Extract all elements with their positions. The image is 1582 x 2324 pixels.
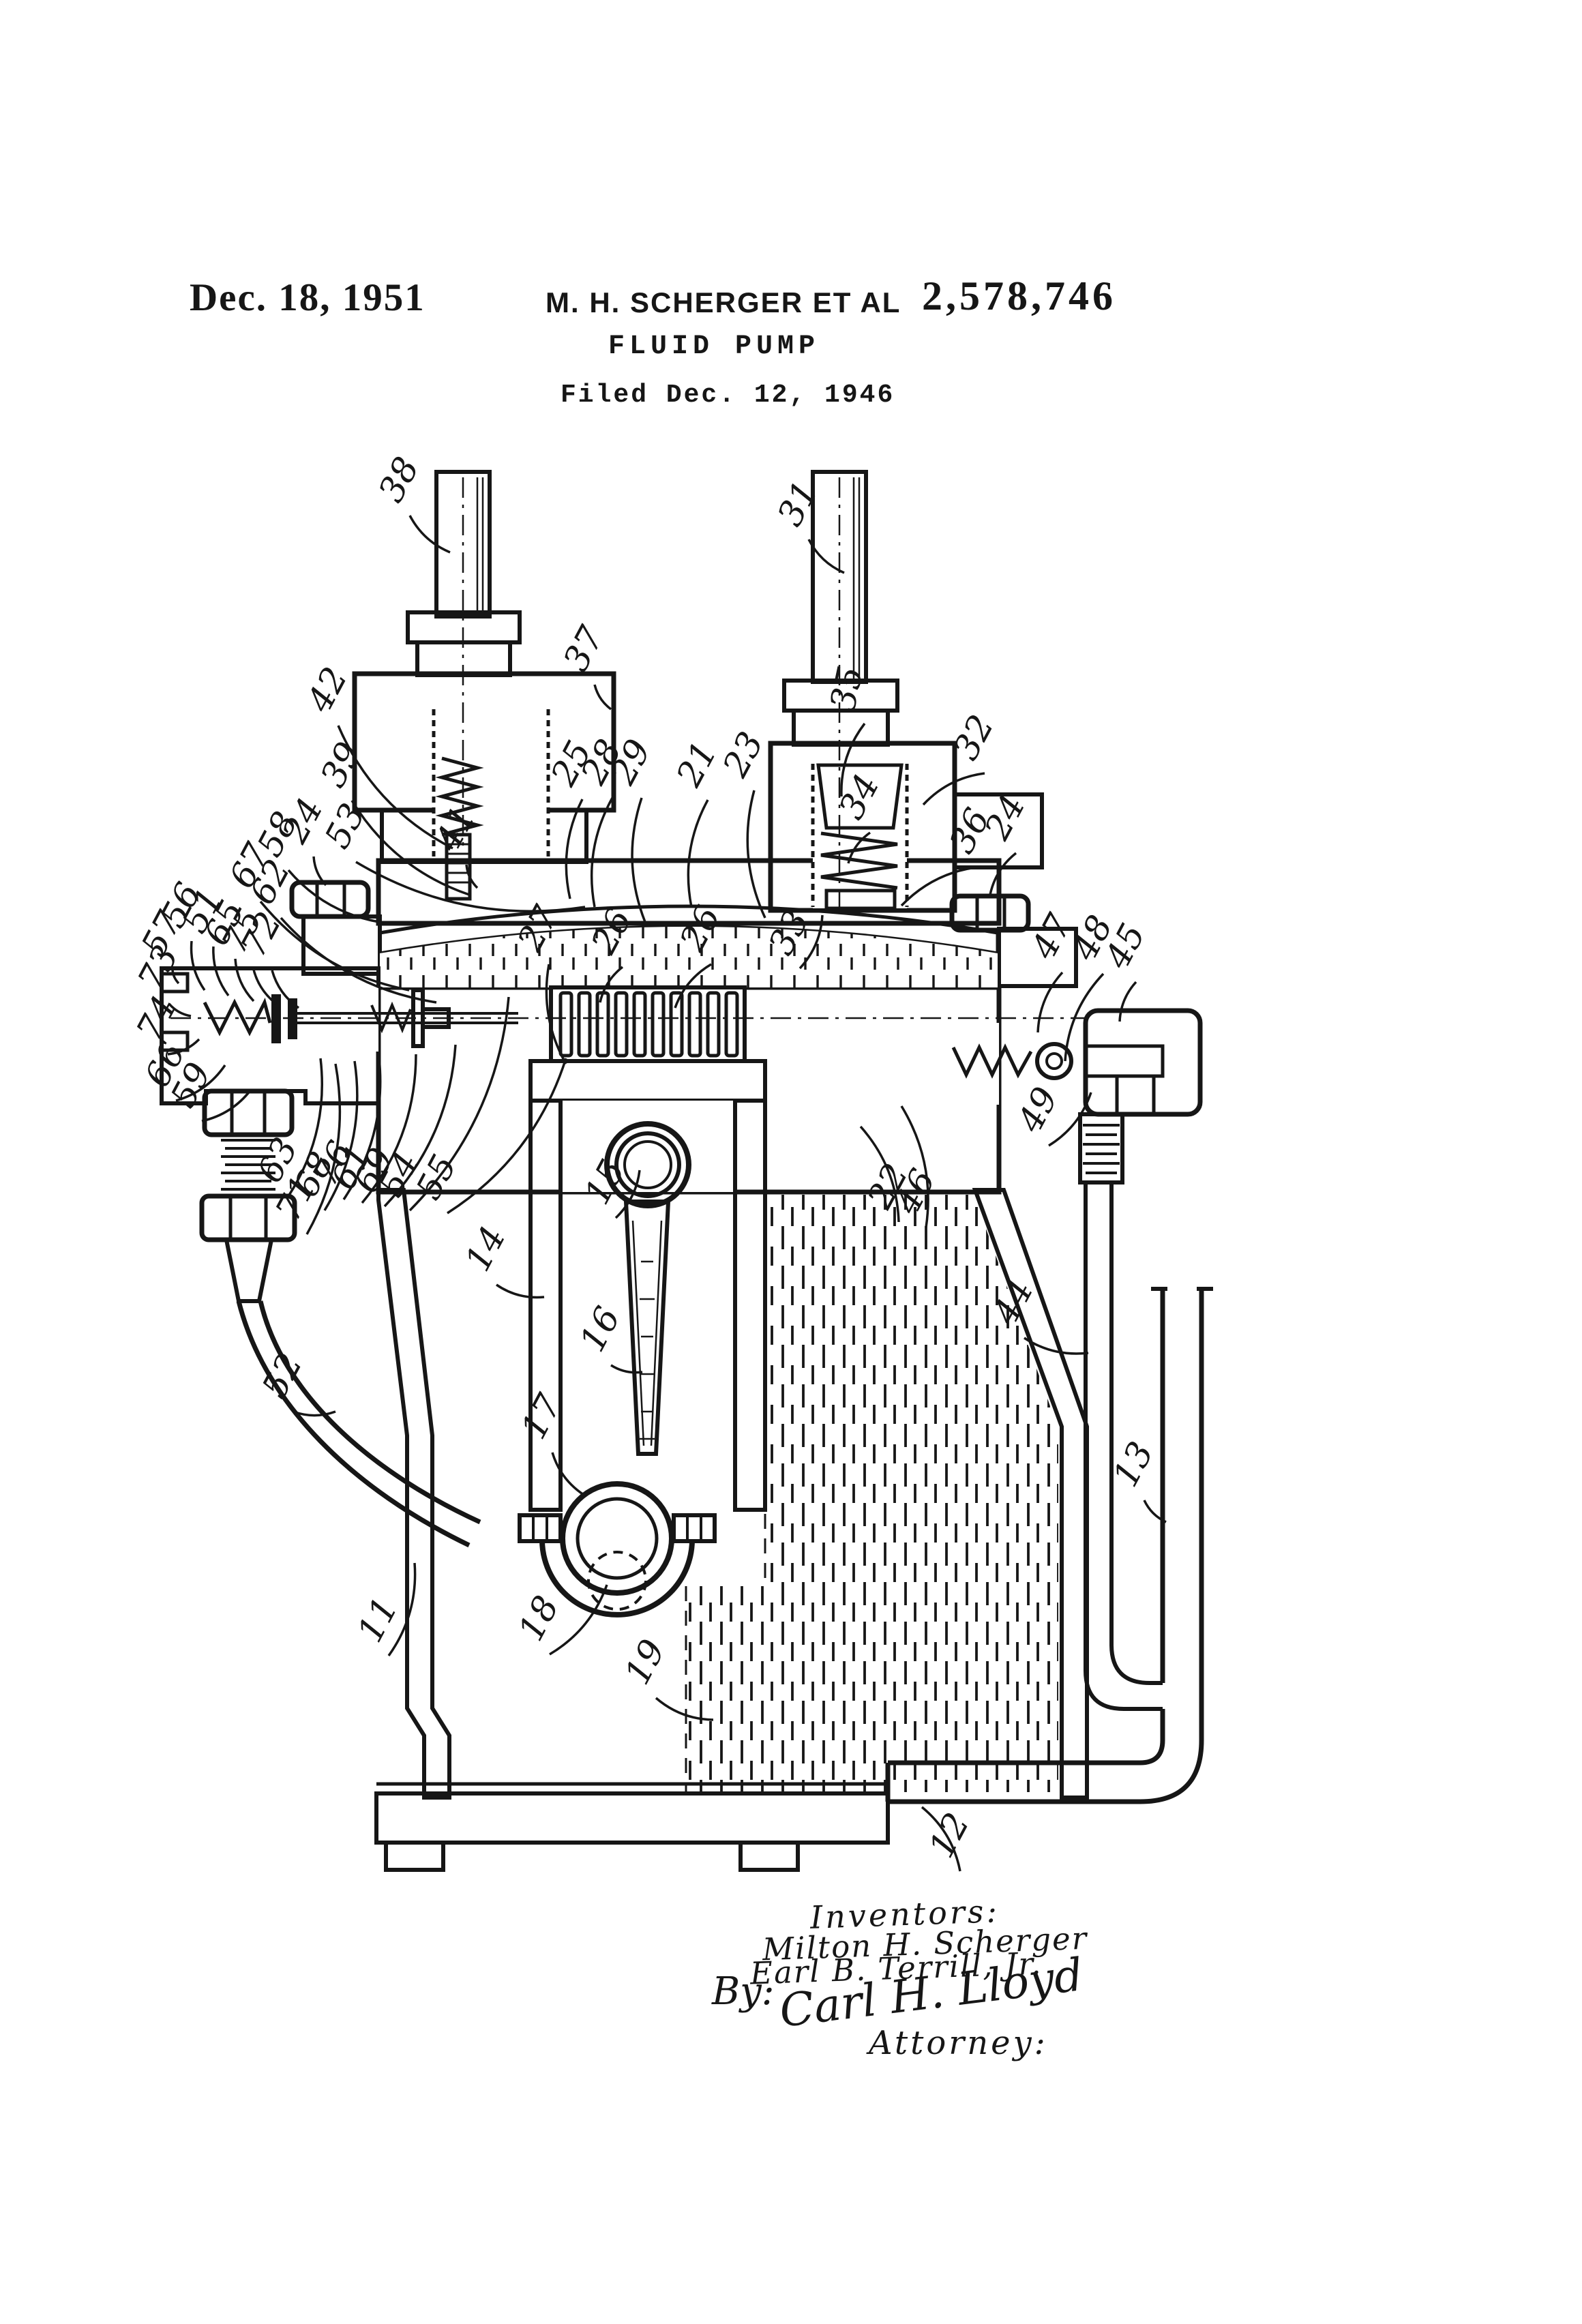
ref-label-13: 13: [1105, 1435, 1162, 1493]
leader-line-37: [595, 685, 611, 709]
ref-label-37: 37: [556, 620, 612, 678]
ref-label-42: 42: [299, 661, 356, 719]
patent-page: Dec. 18, 1951 M. H. SCHERGER ET AL 2,578…: [0, 0, 1582, 2324]
ref-label-49: 49: [1010, 1081, 1066, 1139]
right-valve-fitting: [949, 1011, 1200, 1182]
leader-line-23: [747, 790, 765, 918]
base-plate: [376, 1784, 888, 1870]
leader-line-25: [566, 799, 582, 899]
ref-label-19: 19: [617, 1633, 674, 1691]
suction-channel: [531, 1061, 765, 1101]
by-label: By:: [712, 1969, 775, 2014]
leader-line-16: [611, 1365, 642, 1373]
leader-line-56: [192, 941, 205, 990]
ref-label-31: 31: [770, 475, 826, 533]
ref-label-16: 16: [572, 1300, 629, 1358]
ref-label-38: 38: [371, 451, 428, 509]
leader-line-28: [592, 798, 612, 907]
ref-label-55: 55: [408, 1148, 465, 1206]
leader-line-17: [552, 1452, 584, 1495]
leader-line-14: [496, 1285, 544, 1298]
right-plunger-assembly: [771, 472, 1042, 910]
leader-line-21: [688, 800, 708, 907]
leader-line-38: [410, 516, 450, 552]
pump-figure: 3831374239353234362433252829212367625824…: [129, 451, 1213, 1871]
ref-label-39: 39: [313, 736, 370, 794]
ref-label-53: 53: [317, 797, 374, 855]
leader-line-47: [1038, 972, 1062, 1032]
cylinder: [531, 1101, 765, 1510]
ref-label-14: 14: [458, 1220, 514, 1278]
ref-label-35: 35: [823, 663, 871, 715]
ref-label-52: 52: [254, 1347, 311, 1405]
slotted-plate: [551, 987, 745, 1061]
leader-line-41: [466, 865, 477, 888]
left-plunger-assembly: [355, 472, 614, 899]
attorney-label: Attorney:: [869, 2024, 1048, 2062]
leader-line-36: [901, 867, 981, 906]
leader-line-45: [1120, 982, 1136, 1022]
cover-bolt-left: [292, 882, 368, 917]
ref-label-18: 18: [511, 1590, 567, 1648]
ref-label-23: 23: [715, 726, 772, 784]
